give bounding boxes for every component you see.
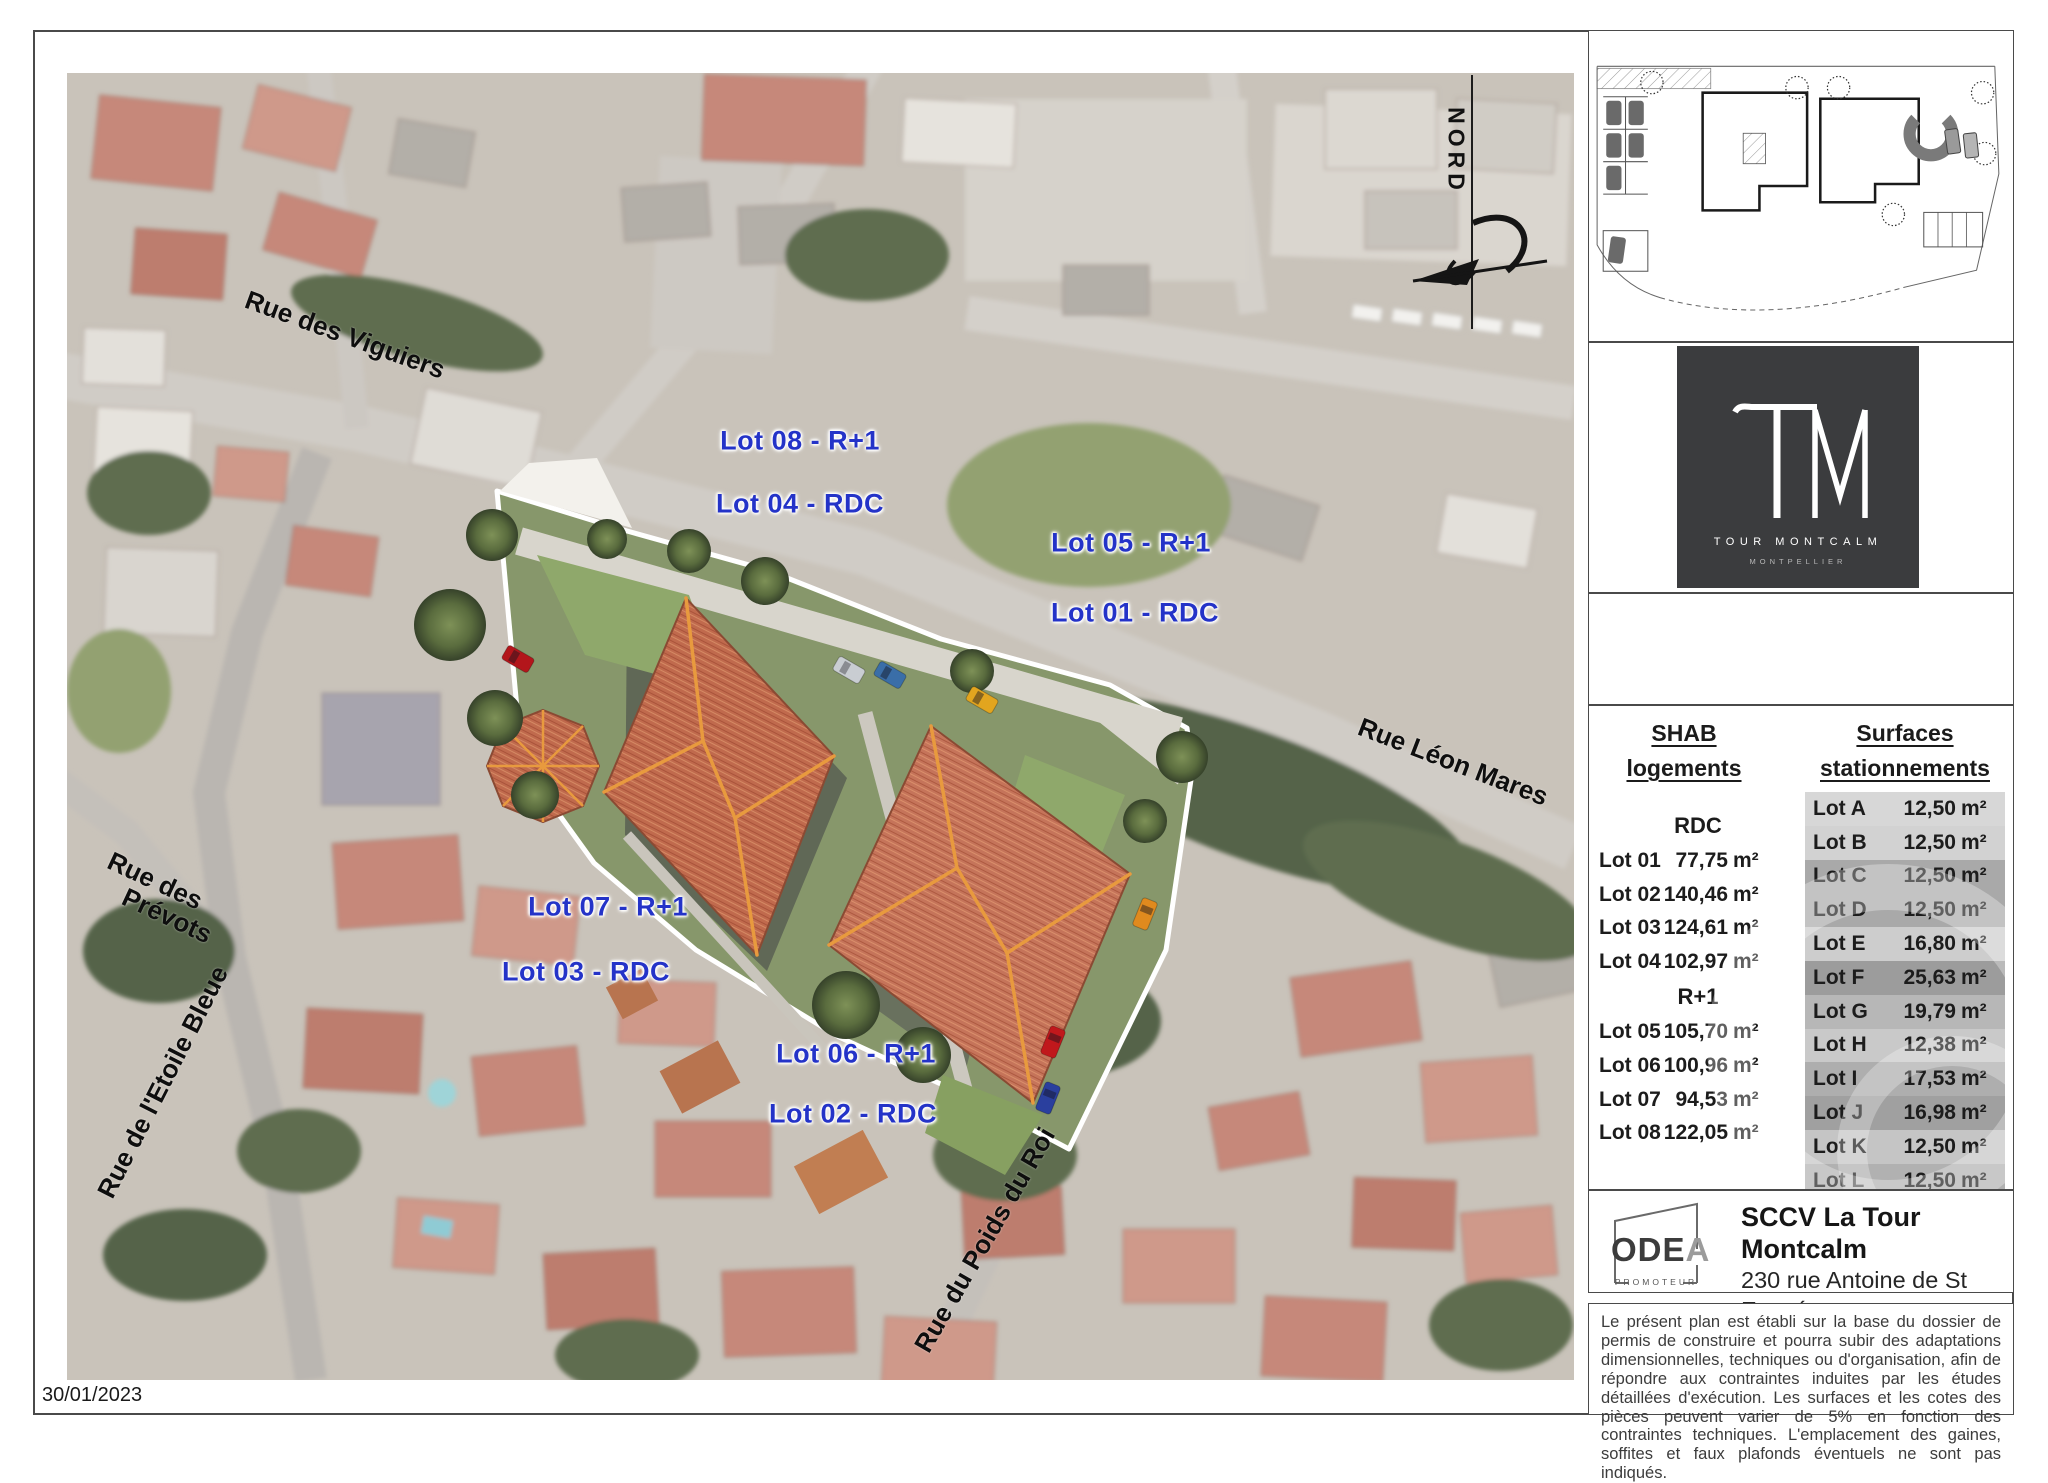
table-row: Lot I 17,53 m² [1805, 1062, 2005, 1096]
table-row: Lot 01 77,75 m² [1599, 844, 1769, 878]
table-row: Lot D 12,50 m² [1805, 893, 2005, 927]
table-row: Lot G 19,79 m² [1805, 995, 2005, 1029]
shab-title-1: SHAB [1599, 716, 1769, 751]
legal-disclaimer-box: Le présent plan est établi sur la base d… [1588, 1303, 2014, 1415]
table-row: Lot 06 100,96 m² [1599, 1049, 1769, 1083]
siteplan-drawing [1589, 31, 2009, 337]
shab-table: SHAB logements RDC Lot 01 77,75 m² Lot 0… [1599, 706, 1769, 1189]
table-row: Lot 05 105,70 m² [1599, 1015, 1769, 1049]
table-row: Lot 02 140,46 m² [1599, 878, 1769, 912]
legal-text: Le présent plan est établi sur la base d… [1601, 1313, 2001, 1482]
table-row: Lot F 25,63 m² [1805, 961, 2005, 995]
shab-rdc-rows: Lot 01 77,75 m² Lot 02 140,46 m² Lot 03 … [1599, 844, 1769, 979]
lot-label: Lot 07 - R+1 [528, 892, 688, 923]
tm-city-text: MONTPELLIER [1750, 557, 1847, 566]
table-row: Lot L 12,50 m² [1805, 1164, 2005, 1190]
shab-r1-rows: Lot 05 105,70 m² Lot 06 100,96 m² Lot 07… [1599, 1015, 1769, 1150]
shab-title-2: logements [1599, 751, 1769, 786]
lot-label: Lot 02 - RDC [769, 1099, 937, 1130]
parking-rows: Lot A 12,50 m² Lot B 12,50 m² Lot C 12,5… [1805, 792, 2005, 1190]
parking-title-1: Surfaces [1805, 716, 2005, 751]
empty-box [1588, 593, 2014, 705]
tm-name-text: TOUR MONTCALM [1714, 536, 1882, 548]
table-row: Lot 07 94,53 m² [1599, 1083, 1769, 1117]
aerial-map: Lot 08 - R+1Lot 04 - RDCLot 05 - R+1Lot … [67, 73, 1574, 1380]
siteplan-box [1588, 30, 2014, 342]
table-row: Lot E 16,80 m² [1805, 927, 2005, 961]
parking-table: Surfaces stationnements Lot A 12,50 m² L… [1805, 706, 2005, 1189]
table-row: Lot 03 124,61 m² [1599, 912, 1769, 946]
lot-label: Lot 03 - RDC [502, 957, 670, 988]
table-row: Lot C 12,50 m² [1805, 860, 2005, 894]
north-label: NORD [1443, 107, 1470, 195]
section-rdc: RDC [1599, 808, 1769, 844]
odea-logo: ODEA PROMOTEUR [1599, 1195, 1717, 1293]
lot-label: Lot 01 - RDC [1051, 598, 1219, 629]
section-r1: R+1 [1599, 979, 1769, 1015]
table-row: Lot K 12,50 m² [1805, 1130, 2005, 1164]
table-row: Lot 04 102,97 m² [1599, 945, 1769, 979]
odea-subtext: PROMOTEUR [1615, 1277, 1697, 1287]
table-row: Lot A 12,50 m² [1805, 792, 2005, 826]
table-row: Lot H 12,38 m² [1805, 1029, 2005, 1063]
lot-label: Lot 08 - R+1 [720, 426, 880, 457]
parking-title-2: stationnements [1805, 751, 2005, 786]
tm-logo-box: TOUR MONTCALM MONTPELLIER [1588, 342, 2014, 593]
promoter-box: ODEA PROMOTEUR SCCV La Tour Montcalm 230… [1588, 1190, 2014, 1293]
table-row: Lot J 16,98 m² [1805, 1096, 2005, 1130]
lot-label: Lot 05 - R+1 [1051, 528, 1211, 559]
odea-text: ODEA [1611, 1231, 1710, 1268]
table-row: Lot B 12,50 m² [1805, 826, 2005, 860]
tm-logo: TOUR MONTCALM MONTPELLIER [1677, 346, 1919, 588]
lot-label: Lot 06 - R+1 [776, 1039, 936, 1070]
company-name: SCCV La Tour Montcalm [1741, 1201, 2013, 1265]
surfaces-tables-box: SHAB logements RDC Lot 01 77,75 m² Lot 0… [1588, 705, 2014, 1190]
table-row: Lot 08 122,05 m² [1599, 1117, 1769, 1151]
lot-label: Lot 04 - RDC [716, 489, 884, 520]
aerial-map-illustration [67, 73, 1574, 1380]
plan-date: 30/01/2023 [42, 1384, 142, 1407]
